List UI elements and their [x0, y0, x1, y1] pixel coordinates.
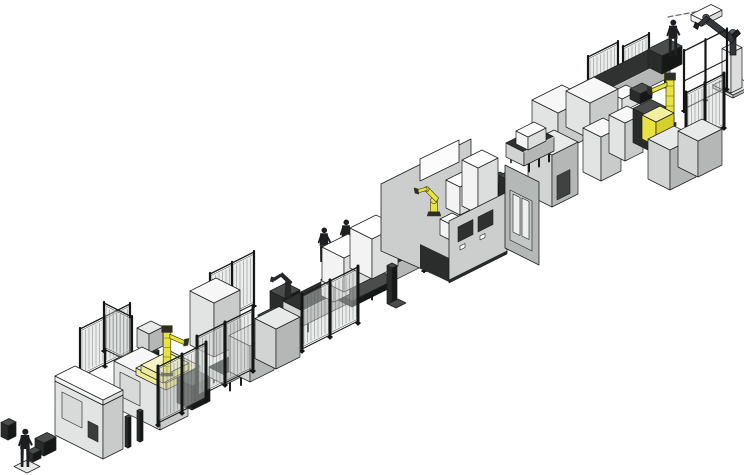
production-line-figure [0, 0, 744, 475]
cabinet [678, 119, 722, 177]
cell-door-glass [513, 194, 520, 236]
fence-mid-near [300, 266, 361, 352]
fence-post [125, 415, 131, 448]
cabinet [255, 307, 300, 370]
post-dark [387, 263, 397, 306]
cell-door-glass [522, 198, 529, 240]
production-line-isometric-rendering [0, 0, 744, 475]
fence-post [137, 409, 143, 442]
line-stop [1, 419, 16, 441]
